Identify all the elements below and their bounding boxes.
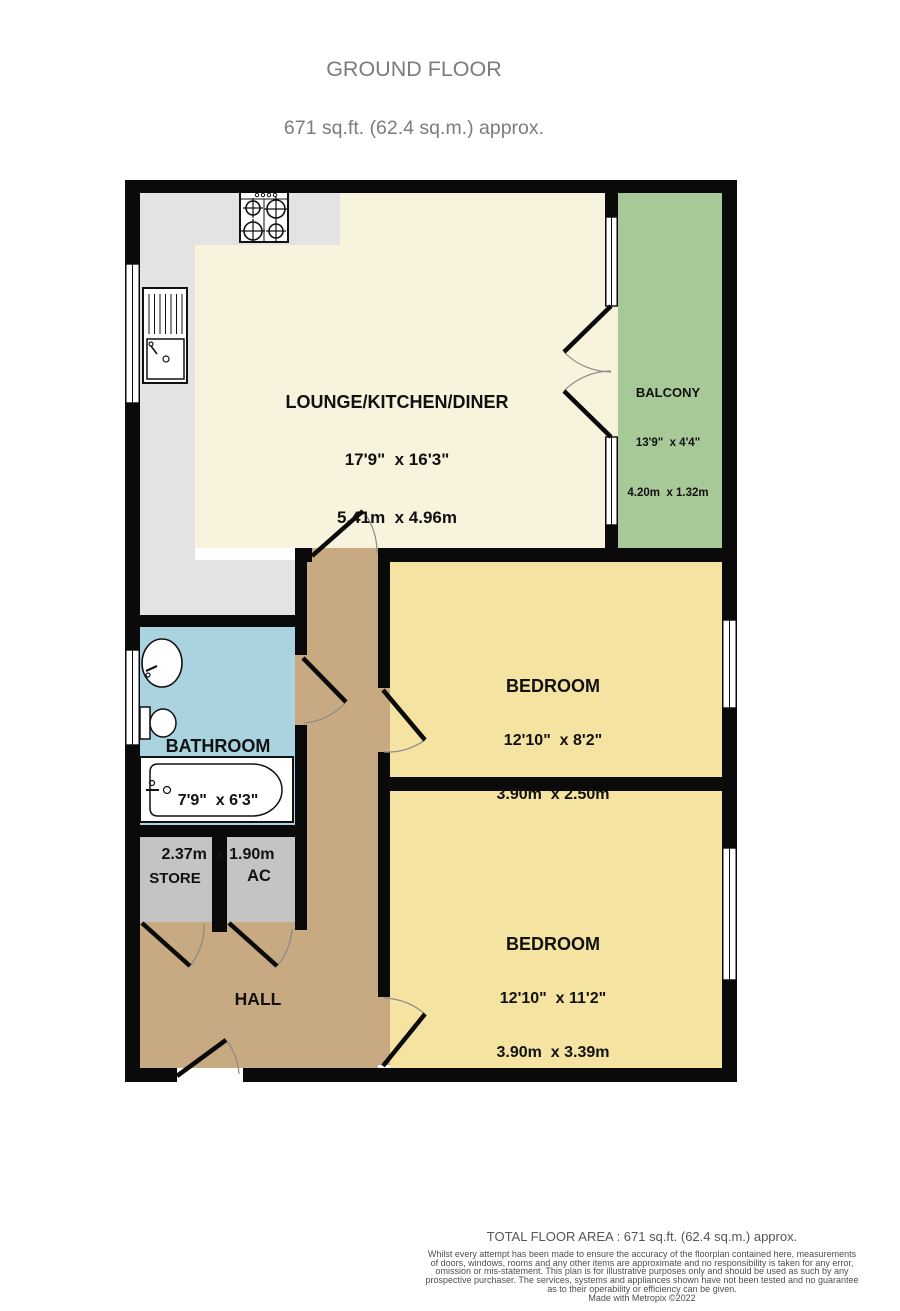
room-label-balcony: BALCONY 13'9" x 4'4" 4.20m x 1.32m [627, 349, 708, 536]
kitchen-sink [143, 288, 187, 383]
room-label-store: STORE [149, 870, 200, 887]
floor-name: GROUND FLOOR [284, 58, 544, 81]
plan-title: GROUND FLOOR 671 sq.ft. (62.4 sq.m.) app… [284, 22, 544, 175]
stove [240, 191, 288, 242]
metropix-credit: Made with Metropix ©2022 [392, 1294, 892, 1303]
bathroom-window [126, 650, 139, 745]
footer: TOTAL FLOOR AREA : 671 sq.ft. (62.4 sq.m… [392, 1229, 892, 1302]
room-label-hall: HALL [235, 989, 282, 1010]
room-label-bedroom2: BEDROOM 12'10" x 11'2" 3.90m x 3.39m [497, 899, 610, 1098]
room-name: BEDROOM [497, 677, 610, 696]
room-name: BALCONY [627, 385, 708, 400]
room-name: BATHROOM [162, 737, 275, 756]
kitchen-window [126, 264, 139, 403]
floors-layer [140, 193, 722, 1068]
room-dims-metric: 3.90m x 3.39m [497, 1044, 610, 1062]
room-name: LOUNGE/KITCHEN/DINER [285, 391, 508, 413]
bathroom-basin [142, 639, 182, 687]
room-dims-imperial: 7'9" x 6'3" [162, 792, 275, 810]
room-name: BEDROOM [497, 935, 610, 954]
floorplan-page: GROUND FLOOR 671 sq.ft. (62.4 sq.m.) app… [0, 0, 900, 1311]
bedroom1-window [723, 620, 736, 708]
room-dims-metric: 2.37m x 1.90m [162, 846, 275, 864]
floorplan-drawing [0, 0, 900, 1311]
total-floor-area: TOTAL FLOOR AREA : 671 sq.ft. (62.4 sq.m… [392, 1229, 892, 1244]
balcony-window-lower [606, 437, 617, 525]
room-dims-imperial: 12'10" x 11'2" [497, 990, 610, 1008]
room-label-ac: AC [247, 867, 271, 886]
room-dims-imperial: 13'9" x 4'4" [627, 436, 708, 450]
room-dims-metric: 4.20m x 1.32m [627, 486, 708, 500]
room-label-lounge: LOUNGE/KITCHEN/DINER 17'9" x 16'3" 5.41m… [285, 355, 508, 565]
room-label-bedroom1: BEDROOM 12'10" x 8'2" 3.90m x 2.50m [497, 641, 610, 840]
room-dims-imperial: 17'9" x 16'3" [285, 449, 508, 471]
floor-area: 671 sq.ft. (62.4 sq.m.) approx. [284, 117, 544, 139]
balcony-window-upper [606, 217, 617, 306]
room-dims-metric: 5.41m x 4.96m [285, 507, 508, 529]
room-dims-imperial: 12'10" x 8'2" [497, 732, 610, 750]
room-dims-metric: 3.90m x 2.50m [497, 786, 610, 804]
bedroom2-window [723, 848, 736, 980]
